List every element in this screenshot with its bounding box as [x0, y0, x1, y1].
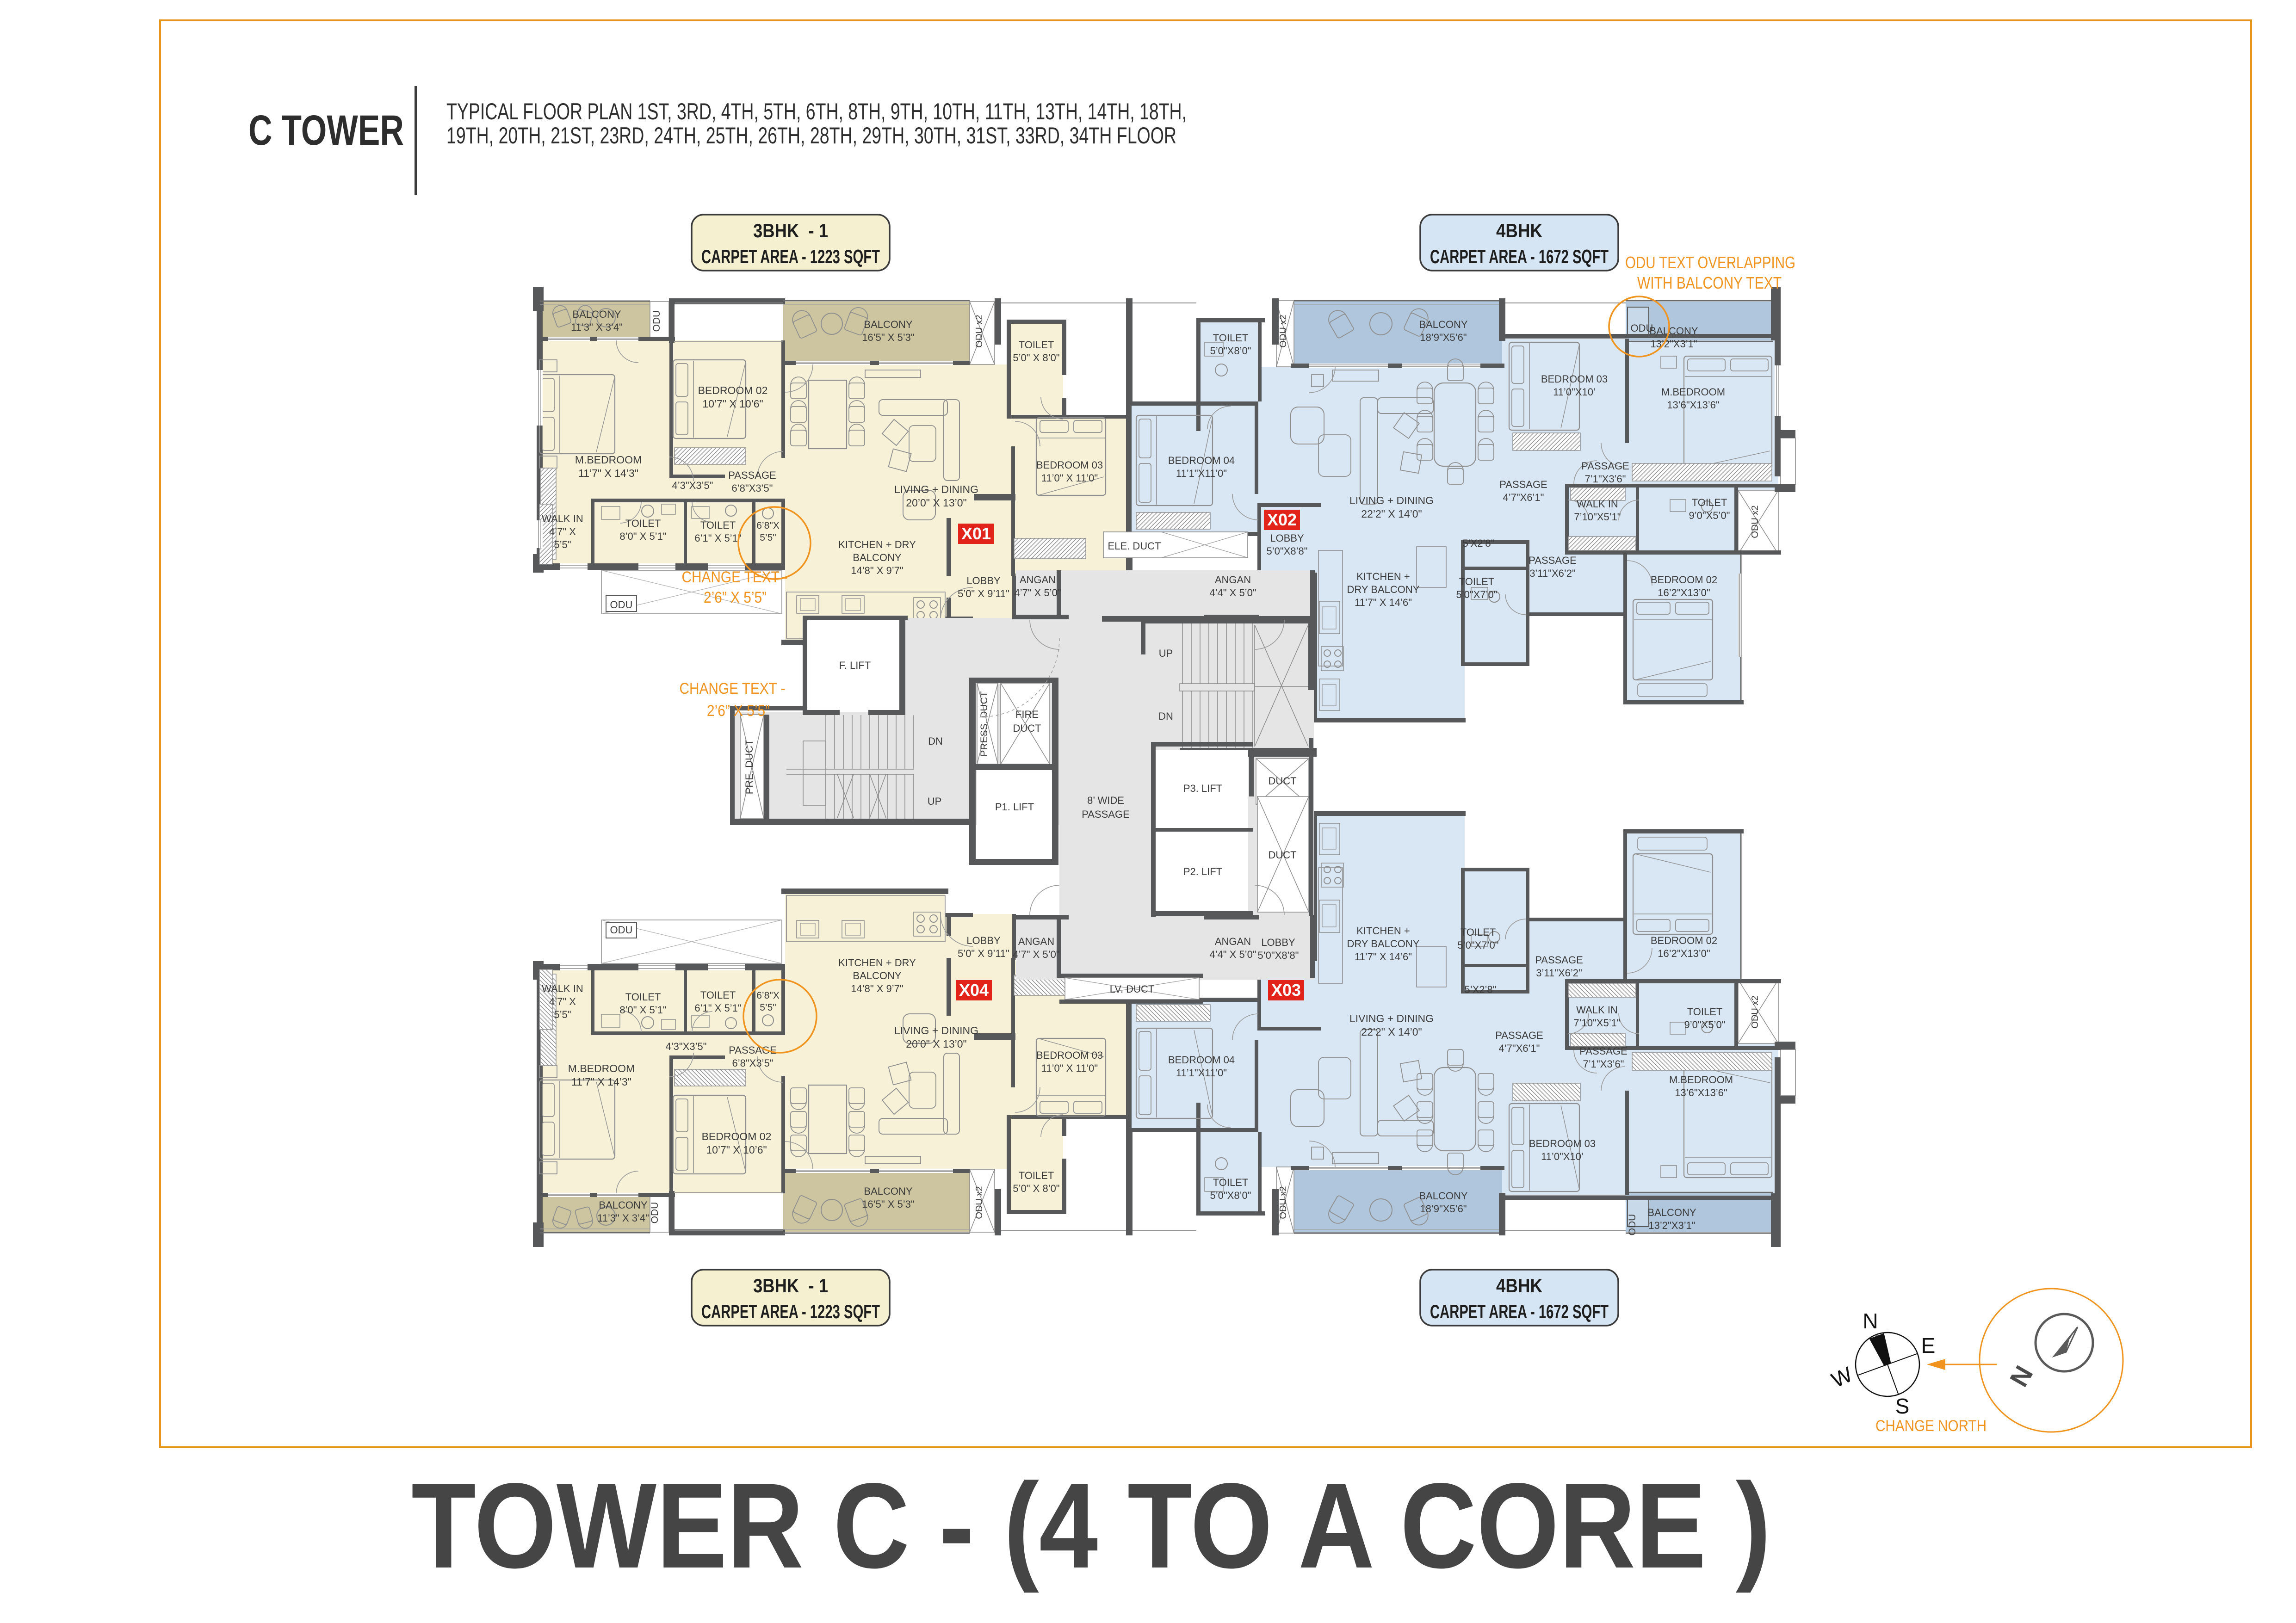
svg-text:KITCHEN +: KITCHEN + — [1356, 925, 1410, 937]
svg-text:16’5" X 5’3": 16’5" X 5’3" — [862, 332, 914, 343]
svg-text:22’2" X 14’0": 22’2" X 14’0" — [1361, 508, 1422, 520]
svg-text:BALCONY: BALCONY — [599, 1199, 647, 1211]
svg-text:WITH BALCONY TEXT: WITH BALCONY TEXT — [1637, 273, 1782, 292]
svg-text:DUCT: DUCT — [1013, 722, 1041, 734]
svg-text:6’1" X 5’1": 6’1" X 5’1" — [694, 532, 741, 544]
svg-text:22’2" X 14’0": 22’2" X 14’0" — [1361, 1026, 1422, 1038]
svg-text:5’X2’8": 5’X2’8" — [1465, 984, 1497, 995]
svg-text:LV. DUCT: LV. DUCT — [1110, 983, 1155, 995]
svg-text:UP: UP — [1159, 648, 1173, 659]
svg-text:11’3" X 3’4": 11’3" X 3’4" — [597, 1212, 649, 1224]
svg-text:X01: X01 — [961, 524, 991, 543]
svg-text:20’0" X 13’0": 20’0" X 13’0" — [906, 1038, 966, 1050]
svg-text:3’11"X6’2": 3’11"X6’2" — [1529, 568, 1576, 579]
svg-text:FIRE: FIRE — [1015, 709, 1039, 720]
svg-text:ODU x2: ODU x2 — [1750, 995, 1760, 1028]
svg-text:KITCHEN +: KITCHEN + — [1356, 571, 1410, 582]
svg-text:DN: DN — [928, 735, 943, 747]
svg-text:BALCONY: BALCONY — [1647, 1207, 1696, 1218]
svg-text:WALK IN: WALK IN — [542, 513, 583, 525]
svg-text:11’3" X 3’4": 11’3" X 3’4" — [571, 321, 623, 333]
svg-text:TOILET: TOILET — [625, 991, 661, 1003]
svg-text:TOILET: TOILET — [700, 989, 736, 1001]
svg-text:5’0"X8’0": 5’0"X8’0" — [1210, 1190, 1251, 1201]
svg-text:CHANGE TEXT -: CHANGE TEXT - — [680, 680, 786, 697]
svg-text:8’0" X 5’1": 8’0" X 5’1" — [619, 1004, 666, 1016]
svg-text:5’0"X8’8": 5’0"X8’8" — [1257, 950, 1299, 961]
svg-text:3’11"X6’2": 3’11"X6’2" — [1536, 967, 1582, 979]
svg-text:E: E — [1921, 1333, 1936, 1358]
svg-text:TOILET: TOILET — [1019, 1170, 1054, 1181]
svg-text:ODU x2: ODU x2 — [1750, 505, 1760, 538]
svg-text:4’7"X6’1": 4’7"X6’1" — [1503, 492, 1544, 503]
svg-text:CHANGE NORTH: CHANGE NORTH — [1875, 1417, 1987, 1435]
svg-text:16’2"X13’0": 16’2"X13’0" — [1658, 587, 1710, 599]
svg-text:TOILET: TOILET — [1459, 576, 1495, 587]
svg-text:BALCONY: BALCONY — [853, 970, 901, 981]
svg-text:ODU: ODU — [610, 599, 633, 611]
svg-text:LIVING + DINING: LIVING + DINING — [1349, 494, 1434, 506]
svg-text:5’X2’8": 5’X2’8" — [1463, 537, 1495, 549]
svg-text:PASSAGE: PASSAGE — [1499, 479, 1547, 490]
svg-text:PASSAGE: PASSAGE — [1529, 555, 1577, 566]
svg-text:BEDROOM 04: BEDROOM 04 — [1168, 455, 1235, 466]
svg-text:BALCONY: BALCONY — [853, 552, 901, 563]
svg-text:3BHK - 1: 3BHK - 1 — [753, 220, 828, 241]
svg-text:7’10"X5’1": 7’10"X5’1" — [1573, 1017, 1620, 1029]
svg-text:14’8" X 9’7": 14’8" X 9’7" — [851, 565, 903, 576]
svg-text:PASSAGE: PASSAGE — [1581, 460, 1629, 472]
svg-text:5’0" X 9’11": 5’0" X 9’11" — [958, 948, 1009, 959]
svg-text:13’2"X3’1": 13’2"X3’1" — [1648, 1220, 1695, 1231]
svg-text:DUCT: DUCT — [1268, 849, 1296, 861]
svg-text:X02: X02 — [1267, 510, 1297, 529]
svg-text:ODU TEXT OVERLAPPING: ODU TEXT OVERLAPPING — [1625, 253, 1795, 272]
svg-text:4’7" X: 4’7" X — [549, 526, 576, 537]
svg-text:14’8" X 9’7": 14’8" X 9’7" — [851, 983, 903, 994]
svg-text:S: S — [1895, 1394, 1910, 1418]
svg-text:BEDROOM 03: BEDROOM 03 — [1036, 459, 1103, 471]
svg-text:TOILET: TOILET — [1461, 926, 1496, 938]
svg-text:BALCONY: BALCONY — [1649, 325, 1698, 337]
svg-text:TOILET: TOILET — [625, 518, 661, 529]
svg-text:ANGAN: ANGAN — [1215, 574, 1251, 586]
svg-text:ODU: ODU — [610, 924, 633, 936]
svg-text:BEDROOM 04: BEDROOM 04 — [1168, 1054, 1235, 1066]
svg-text:PASSAGE: PASSAGE — [1495, 1030, 1543, 1041]
svg-text:KITCHEN + DRY: KITCHEN + DRY — [838, 539, 916, 550]
svg-text:5’0" X 9’11": 5’0" X 9’11" — [958, 588, 1009, 599]
svg-text:11’7" X 14’6": 11’7" X 14’6" — [1355, 951, 1412, 963]
svg-text:BALCONY: BALCONY — [572, 309, 621, 320]
svg-text:10’7" X 10’6": 10’7" X 10’6" — [706, 1144, 767, 1156]
svg-text:P1. LIFT: P1. LIFT — [995, 801, 1034, 813]
svg-text:DN: DN — [1158, 710, 1173, 722]
svg-text:4’4" X 5’0": 4’4" X 5’0" — [1209, 949, 1256, 960]
svg-text:BEDROOM 02: BEDROOM 02 — [1651, 935, 1717, 946]
svg-text:4BHK: 4BHK — [1496, 220, 1542, 241]
svg-text:11’7" X 14’6": 11’7" X 14’6" — [1355, 597, 1412, 608]
svg-text:10’7" X 10’6": 10’7" X 10’6" — [702, 398, 763, 410]
svg-text:M.BEDROOM: M.BEDROOM — [1661, 386, 1725, 398]
svg-text:LOBBY: LOBBY — [966, 575, 1001, 586]
svg-text:13’2"X3’1": 13’2"X3’1" — [1650, 338, 1697, 350]
svg-text:PASSAGE: PASSAGE — [728, 469, 776, 481]
svg-text:2’6” X 5’5”: 2’6” X 5’5” — [707, 702, 770, 720]
svg-text:4’4" X 5’0": 4’4" X 5’0" — [1209, 587, 1256, 599]
svg-text:5’5": 5’5" — [554, 539, 571, 550]
svg-text:5’0" X 8’0": 5’0" X 8’0" — [1013, 1183, 1059, 1194]
svg-text:WALK IN: WALK IN — [1577, 498, 1618, 510]
svg-text:ODU x2: ODU x2 — [974, 1186, 984, 1219]
svg-text:ODU: ODU — [650, 1202, 660, 1224]
svg-text:X04: X04 — [959, 981, 989, 1000]
svg-text:TOILET: TOILET — [1019, 339, 1054, 351]
svg-text:8’ WIDE: 8’ WIDE — [1087, 795, 1124, 806]
svg-text:N: N — [1863, 1309, 1878, 1333]
svg-text:4’7"X6’1": 4’7"X6’1" — [1498, 1043, 1540, 1054]
svg-text:M.BEDROOM: M.BEDROOM — [575, 454, 642, 466]
svg-text:BEDROOM 03: BEDROOM 03 — [1529, 1138, 1596, 1149]
svg-text:TOILET: TOILET — [1687, 1006, 1723, 1018]
svg-text:5’0"X8’8": 5’0"X8’8" — [1266, 545, 1307, 557]
svg-text:CARPET AREA - 1672 SQFT: CARPET AREA - 1672 SQFT — [1430, 246, 1609, 267]
svg-text:11’1"X11’0": 11’1"X11’0" — [1176, 468, 1227, 479]
svg-text:8’0" X 5’1": 8’0" X 5’1" — [619, 531, 666, 542]
svg-text:ODU x2: ODU x2 — [1278, 315, 1288, 347]
svg-text:CARPET AREA - 1223 SQFT: CARPET AREA - 1223 SQFT — [701, 246, 880, 267]
svg-text:11’0"X10’: 11’0"X10’ — [1541, 1151, 1584, 1162]
svg-text:UP: UP — [928, 796, 942, 807]
svg-text:P3. LIFT: P3. LIFT — [1183, 783, 1222, 794]
svg-text:KITCHEN + DRY: KITCHEN + DRY — [838, 957, 916, 969]
svg-text:7’10"X5’1": 7’10"X5’1" — [1574, 511, 1621, 523]
svg-text:4’3"X3’5": 4’3"X3’5" — [672, 480, 713, 491]
svg-text:11’0" X 11’0": 11’0" X 11’0" — [1041, 1062, 1098, 1074]
svg-text:6’8"X3’5": 6’8"X3’5" — [732, 1057, 773, 1069]
svg-text:5’5": 5’5" — [760, 532, 776, 543]
svg-text:6’8"X: 6’8"X — [756, 520, 780, 531]
svg-text:TOWER C - (4 TO A CORE ): TOWER C - (4 TO A CORE ) — [411, 1458, 1771, 1594]
svg-text:16’5" X 5’3": 16’5" X 5’3" — [862, 1198, 914, 1210]
svg-text:ANGAN: ANGAN — [1020, 574, 1056, 586]
svg-text:11’7" X 14’3": 11’7" X 14’3" — [578, 467, 638, 479]
svg-text:4BHK: 4BHK — [1496, 1275, 1542, 1296]
svg-text:4’7" X 5’0": 4’7" X 5’0" — [1014, 587, 1061, 599]
svg-text:WALK IN: WALK IN — [542, 983, 583, 994]
svg-text:LOBBY: LOBBY — [1261, 937, 1295, 948]
svg-text:5’5": 5’5" — [554, 1009, 571, 1020]
svg-text:M.BEDROOM: M.BEDROOM — [1669, 1074, 1733, 1086]
svg-text:18’9"X5’6": 18’9"X5’6" — [1420, 1203, 1467, 1215]
svg-text:5’0" X 8’0": 5’0" X 8’0" — [1013, 352, 1059, 364]
svg-text:BALCONY: BALCONY — [864, 1185, 912, 1197]
svg-text:LIVING + DINING: LIVING + DINING — [894, 1024, 978, 1037]
svg-text:BALCONY: BALCONY — [864, 319, 912, 330]
svg-text:PRE. DUCT: PRE. DUCT — [743, 740, 755, 795]
svg-text:PASSAGE: PASSAGE — [1579, 1045, 1628, 1057]
svg-text:4’7" X 5’0": 4’7" X 5’0" — [1013, 949, 1059, 960]
svg-text:TOILET: TOILET — [1213, 1177, 1249, 1188]
svg-text:PASSAGE: PASSAGE — [1535, 954, 1583, 966]
svg-text:6’1" X 5’1": 6’1" X 5’1" — [694, 1002, 741, 1014]
svg-text:LOBBY: LOBBY — [966, 935, 1001, 946]
svg-text:11’0"X10’: 11’0"X10’ — [1553, 386, 1596, 398]
svg-text:5’0"X7’0": 5’0"X7’0" — [1456, 589, 1497, 600]
svg-text:ELE. DUCT: ELE. DUCT — [1108, 540, 1161, 552]
svg-text:ODU x2: ODU x2 — [1278, 1186, 1288, 1219]
svg-text:LIVING + DINING: LIVING + DINING — [1349, 1012, 1434, 1024]
svg-text:PASSAGE: PASSAGE — [729, 1044, 777, 1056]
svg-text:4’7" X: 4’7" X — [549, 996, 576, 1007]
svg-text:TYPICAL FLOOR PLAN 1ST, 3RD, 4: TYPICAL FLOOR PLAN 1ST, 3RD, 4TH, 5TH, 6… — [446, 99, 1187, 124]
svg-text:7’1"X3’6": 7’1"X3’6" — [1583, 1058, 1624, 1070]
svg-text:16’2"X13’0": 16’2"X13’0" — [1658, 948, 1710, 959]
svg-text:LIVING + DINING: LIVING + DINING — [894, 483, 978, 495]
svg-text:F. LIFT: F. LIFT — [839, 660, 871, 671]
svg-text:BEDROOM 02: BEDROOM 02 — [702, 1130, 772, 1142]
svg-text:PRESS. DUCT: PRESS. DUCT — [979, 691, 990, 756]
svg-text:DRY BALCONY: DRY BALCONY — [1347, 584, 1420, 595]
svg-text:6’8"X: 6’8"X — [756, 990, 780, 1001]
svg-text:C TOWER: C TOWER — [248, 107, 404, 154]
svg-text:11’0" X 11’0": 11’0" X 11’0" — [1041, 472, 1098, 484]
svg-text:ANGAN: ANGAN — [1018, 936, 1054, 947]
svg-text:CHANGE TEXT -: CHANGE TEXT - — [682, 568, 788, 586]
svg-text:13’6"X13’6": 13’6"X13’6" — [1675, 1087, 1727, 1098]
svg-text:13’6"X13’6": 13’6"X13’6" — [1667, 399, 1719, 411]
svg-text:BALCONY: BALCONY — [1419, 319, 1467, 330]
svg-text:DUCT: DUCT — [1268, 775, 1296, 787]
svg-text:18’9"X5’6": 18’9"X5’6" — [1420, 332, 1467, 343]
svg-text:BALCONY: BALCONY — [1419, 1190, 1467, 1202]
svg-text:20’0" X 13’0": 20’0" X 13’0" — [906, 497, 966, 509]
svg-text:PASSAGE: PASSAGE — [1082, 808, 1130, 820]
svg-text:3BHK - 1: 3BHK - 1 — [753, 1275, 828, 1296]
svg-text:11’7" X 14’3": 11’7" X 14’3" — [571, 1076, 631, 1088]
svg-text:DRY BALCONY: DRY BALCONY — [1347, 938, 1420, 950]
svg-text:4’3"X3’5": 4’3"X3’5" — [665, 1041, 706, 1052]
svg-text:LOBBY: LOBBY — [1270, 532, 1304, 544]
svg-text:ANGAN: ANGAN — [1215, 936, 1251, 947]
svg-text:19TH, 20TH, 21ST, 23RD, 24TH,: 19TH, 20TH, 21ST, 23RD, 24TH, 25TH, 26TH… — [446, 123, 1176, 148]
svg-text:BEDROOM 02: BEDROOM 02 — [1651, 574, 1717, 586]
svg-text:ODU: ODU — [1627, 1214, 1638, 1236]
svg-text:TOILET: TOILET — [1692, 497, 1727, 508]
svg-text:BEDROOM 03: BEDROOM 03 — [1541, 373, 1608, 385]
svg-text:X03: X03 — [1271, 981, 1301, 1000]
svg-text:BEDROOM 03: BEDROOM 03 — [1036, 1049, 1103, 1061]
svg-text:WALK IN: WALK IN — [1576, 1004, 1618, 1016]
svg-text:9’0"X5’0": 9’0"X5’0" — [1684, 1019, 1725, 1031]
svg-text:ODU: ODU — [651, 310, 662, 332]
svg-text:TOILET: TOILET — [700, 519, 736, 531]
svg-text:M.BEDROOM: M.BEDROOM — [568, 1062, 635, 1074]
svg-text:6’8"X3’5": 6’8"X3’5" — [731, 482, 773, 494]
svg-text:5’0"X7’0": 5’0"X7’0" — [1457, 939, 1498, 951]
svg-text:5’5": 5’5" — [760, 1002, 776, 1013]
svg-text:11’1"X11’0": 11’1"X11’0" — [1176, 1067, 1227, 1079]
svg-text:P2. LIFT: P2. LIFT — [1183, 866, 1222, 877]
svg-text:5’0"X8’0": 5’0"X8’0" — [1210, 345, 1251, 357]
svg-text:CARPET AREA - 1223 SQFT: CARPET AREA - 1223 SQFT — [701, 1301, 880, 1322]
svg-text:2’6” X 5’5”: 2’6” X 5’5” — [704, 589, 767, 606]
svg-text:TOILET: TOILET — [1213, 332, 1249, 344]
svg-text:BEDROOM 02: BEDROOM 02 — [698, 384, 768, 396]
svg-text:ODU x2: ODU x2 — [974, 315, 984, 347]
svg-text:CARPET AREA - 1672 SQFT: CARPET AREA - 1672 SQFT — [1430, 1301, 1609, 1322]
svg-text:7’1"X3’6": 7’1"X3’6" — [1584, 473, 1626, 485]
svg-text:9’0"X5’0": 9’0"X5’0" — [1689, 510, 1730, 521]
